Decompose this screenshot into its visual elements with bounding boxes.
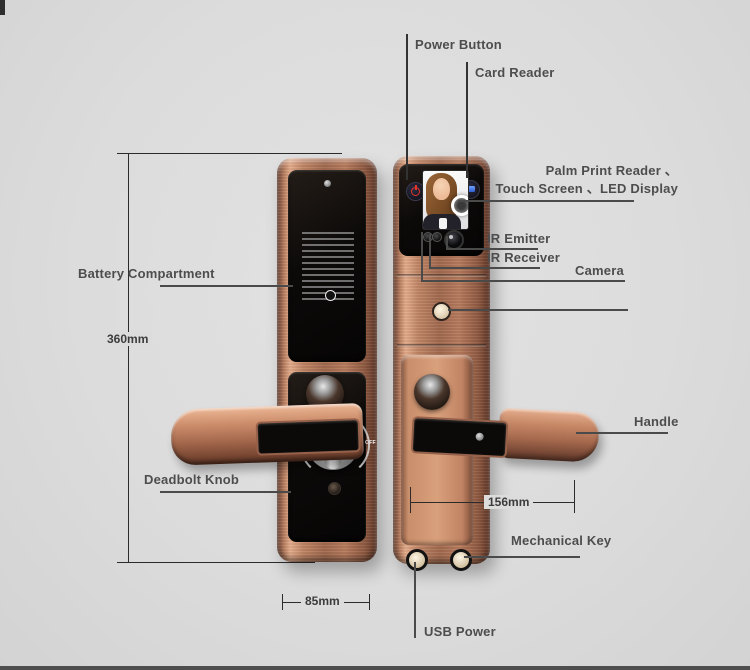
battery-icon bbox=[325, 290, 336, 301]
card-reader-label: Card Reader bbox=[475, 65, 555, 80]
privacy-button[interactable] bbox=[328, 482, 341, 495]
dim-85-left-tick bbox=[282, 594, 283, 610]
interior-lock-body: ON OFF OFF bbox=[277, 158, 377, 562]
camera-leader bbox=[421, 280, 625, 282]
battery-compartment-panel bbox=[288, 170, 366, 362]
power-icon-tick bbox=[415, 185, 417, 190]
ir-receiver-leader-v bbox=[429, 234, 431, 268]
dim-156-left-tick bbox=[410, 487, 411, 513]
dim-360-value: 360mm bbox=[103, 332, 152, 346]
deadbolt-off-right-label: OFF bbox=[365, 440, 376, 446]
palm-reader-label-line2: Touch Screen 、LED Display bbox=[478, 178, 678, 197]
camera-label: Camera bbox=[575, 263, 624, 278]
exterior-handle-lever bbox=[498, 408, 600, 463]
ir-receiver-dot bbox=[432, 232, 442, 242]
palm-print-reader bbox=[451, 195, 469, 216]
sensor-leader bbox=[448, 309, 628, 311]
exterior-handle[interactable] bbox=[407, 399, 600, 467]
dim-360-vertical-line bbox=[128, 154, 129, 563]
screw-icon bbox=[324, 180, 331, 187]
interior-handle-inlay bbox=[256, 418, 361, 456]
usb-power-leader bbox=[414, 562, 416, 638]
palm-reader-leader bbox=[458, 200, 634, 202]
bottom-border-strip bbox=[0, 666, 750, 670]
fingerprint-window[interactable] bbox=[411, 416, 509, 458]
battery-leader bbox=[160, 285, 293, 287]
dim-360-bottom-extension-line bbox=[117, 562, 315, 563]
dim-360-top-extension-line bbox=[117, 153, 342, 154]
key-cylinder[interactable] bbox=[450, 549, 472, 571]
body-seam bbox=[397, 344, 486, 347]
handle-leader bbox=[576, 432, 668, 434]
dim-85-value: 85mm bbox=[301, 594, 344, 608]
mechanical-key-label: Mechanical Key bbox=[511, 533, 611, 548]
body-seam bbox=[397, 274, 486, 277]
card-reader-leader bbox=[466, 62, 468, 178]
mechanical-key-leader bbox=[464, 556, 580, 558]
power-button-label: Power Button bbox=[415, 37, 502, 52]
dim-85-right-tick bbox=[369, 594, 370, 610]
ir-emitter-label: IR Emitter bbox=[487, 231, 550, 246]
dim-156-value: 156mm bbox=[484, 495, 533, 509]
top-bezel-panel bbox=[399, 164, 484, 256]
doorbell-sensor[interactable] bbox=[432, 302, 451, 321]
palm-reader-label-line1: Palm Print Reader 、 bbox=[478, 160, 678, 179]
diagram-canvas: ON OFF OFF bbox=[0, 0, 750, 670]
interior-handle[interactable] bbox=[170, 403, 364, 466]
handle-label: Handle bbox=[634, 414, 679, 429]
fingerprint-dot bbox=[475, 433, 483, 441]
portrait-face bbox=[433, 178, 450, 200]
camera-leader-v bbox=[421, 232, 423, 281]
portrait-shirt bbox=[439, 218, 447, 229]
usb-port[interactable] bbox=[406, 549, 428, 571]
power-button-leader bbox=[406, 34, 408, 180]
battery-compartment-label: Battery Compartment bbox=[78, 266, 215, 281]
ir-receiver-label: IR Receiver bbox=[487, 250, 560, 265]
dim-156-right-tick bbox=[574, 480, 575, 513]
usb-power-label: USB Power bbox=[424, 624, 496, 639]
corner-artifact bbox=[0, 0, 5, 15]
ir-receiver-leader bbox=[429, 267, 540, 269]
deadbolt-knob-label: Deadbolt Knob bbox=[144, 472, 239, 487]
deadbolt-leader bbox=[160, 491, 291, 493]
